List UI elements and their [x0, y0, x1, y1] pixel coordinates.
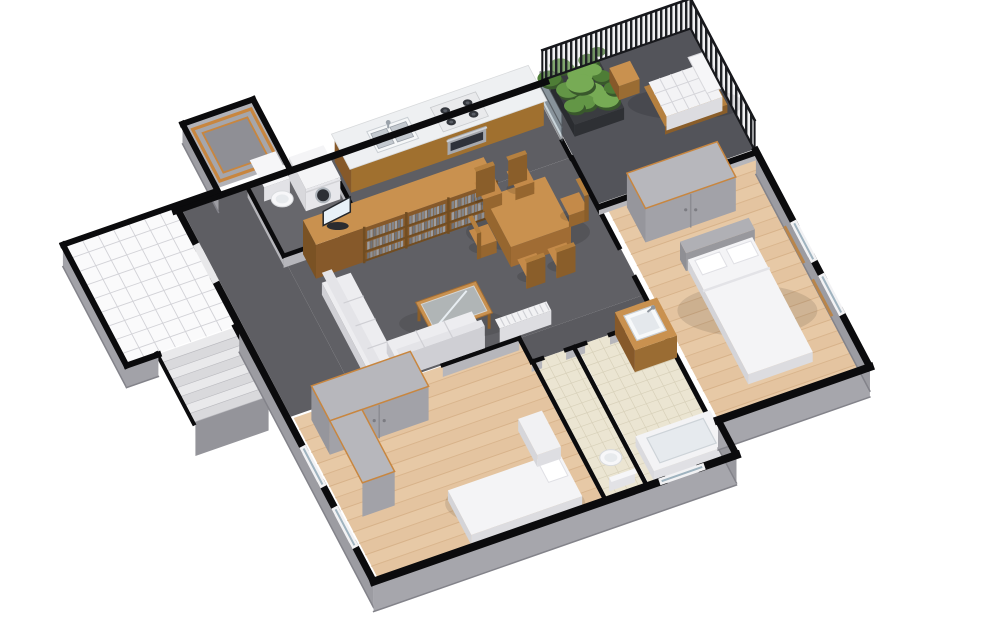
floorplan-3d-view [0, 0, 1000, 644]
floorplan-svg [0, 0, 1000, 644]
